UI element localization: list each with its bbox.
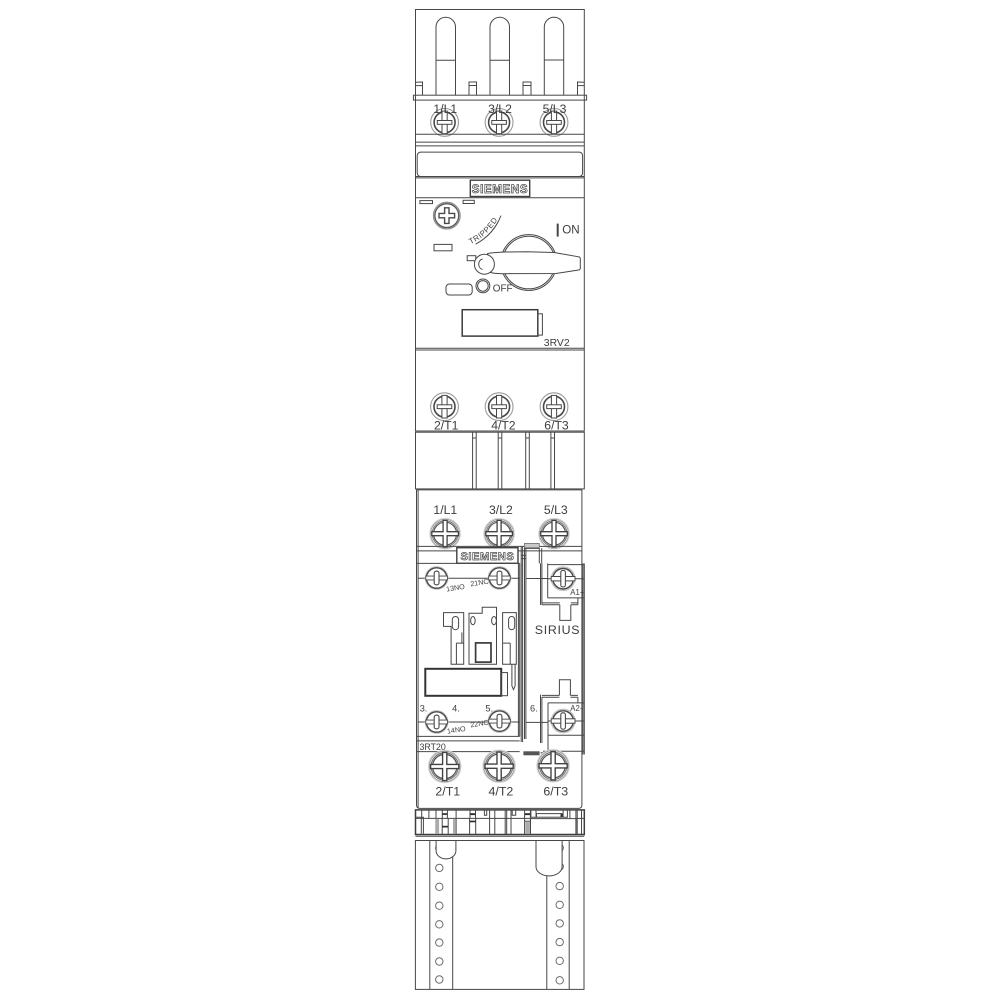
svg-text:OFF: OFF — [493, 284, 513, 295]
svg-text:5/L3: 5/L3 — [544, 503, 568, 517]
svg-text:4/T2: 4/T2 — [491, 418, 516, 432]
svg-text:3/L2: 3/L2 — [488, 102, 512, 116]
svg-text:6/T3: 6/T3 — [544, 418, 569, 432]
svg-text:SIEMENS: SIEMENS — [460, 551, 514, 563]
svg-text:5.: 5. — [485, 703, 493, 713]
svg-text:SIEMENS: SIEMENS — [472, 183, 528, 196]
svg-text:1/L1: 1/L1 — [433, 102, 457, 116]
svg-text:A2-: A2- — [570, 704, 583, 713]
svg-text:6/T3: 6/T3 — [543, 784, 568, 798]
svg-text:ON: ON — [562, 224, 579, 237]
svg-text:1/L1: 1/L1 — [433, 503, 457, 517]
svg-text:SIRIUS: SIRIUS — [535, 623, 581, 637]
svg-text:2/T1: 2/T1 — [435, 784, 460, 798]
svg-text:6.: 6. — [530, 703, 538, 713]
svg-text:4.: 4. — [452, 703, 460, 713]
svg-text:3RV2: 3RV2 — [544, 338, 570, 349]
svg-text:2/T1: 2/T1 — [434, 418, 459, 432]
svg-text:5/L3: 5/L3 — [543, 102, 567, 116]
svg-text:4/T2: 4/T2 — [489, 784, 514, 798]
svg-text:3/L2: 3/L2 — [489, 503, 513, 517]
svg-text:3.: 3. — [420, 703, 428, 713]
